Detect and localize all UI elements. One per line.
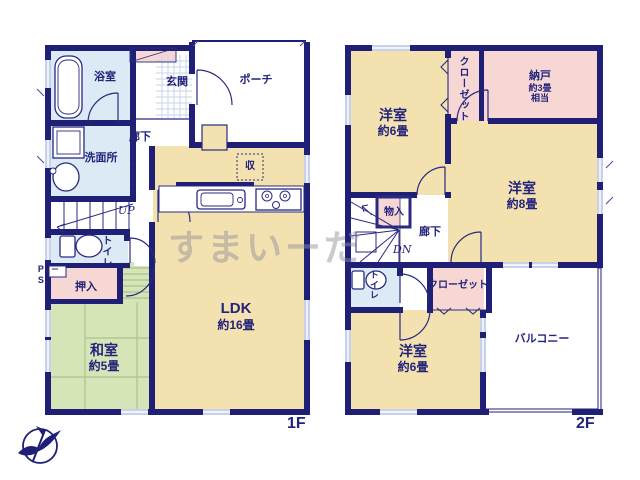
label-bedroom6a: 洋室 — [379, 108, 407, 123]
label-closet-bottom: クローゼット — [428, 280, 488, 291]
label-stairs-up: UP — [118, 205, 135, 217]
label-bedroom8: 洋室 — [508, 181, 536, 196]
walls-2f — [345, 45, 603, 415]
label-monoire: 物入 — [384, 207, 404, 218]
label-corridor-2f: 廊下 — [419, 226, 441, 238]
label-stairs-dn: DN — [393, 244, 411, 256]
label-balcony: バルコニー — [515, 333, 570, 345]
label-bedroom6b: 洋室 — [399, 344, 427, 359]
floor-plan: 浴室 玄関 ポーチ 廊下 洗面所 UP トイレ PS 押入 和室 約5畳 LDK… — [0, 0, 640, 480]
floor1-tag: 1F — [287, 415, 306, 433]
floor2-tag: 2F — [576, 415, 595, 433]
label-bath: 浴室 — [94, 71, 116, 83]
label-toilet-2f: トイレ — [368, 270, 378, 300]
label-washroom: 洗面所 — [85, 152, 118, 164]
tatami-lines — [51, 268, 151, 409]
label-oshiire: 押入 — [75, 281, 97, 293]
label-bedroom6a-size: 約6畳 — [378, 125, 409, 138]
label-storage: 収 — [245, 161, 255, 172]
label-ldk: LDK — [221, 301, 252, 318]
label-bedroom6b-size: 約6畳 — [398, 361, 429, 374]
label-entrance: 玄関 — [166, 76, 188, 88]
label-closet-top: クローゼット — [457, 56, 468, 122]
label-corridor-1f: 廊下 — [129, 131, 151, 143]
label-bedroom8-size: 約8畳 — [507, 198, 538, 211]
label-toilet-1f: トイレ — [100, 235, 111, 268]
watermark: すまいーだ — [168, 219, 363, 271]
label-nando-size2: 相当 — [531, 94, 549, 104]
label-ldk-size: 約16畳 — [217, 319, 254, 332]
compass-icon — [18, 426, 61, 463]
label-porch: ポーチ — [240, 74, 273, 86]
label-ps: PS — [35, 264, 45, 286]
label-washitsu: 和室 — [90, 343, 118, 358]
label-nando: 納戸 — [529, 70, 551, 82]
label-washitsu-size: 約5畳 — [89, 360, 120, 373]
